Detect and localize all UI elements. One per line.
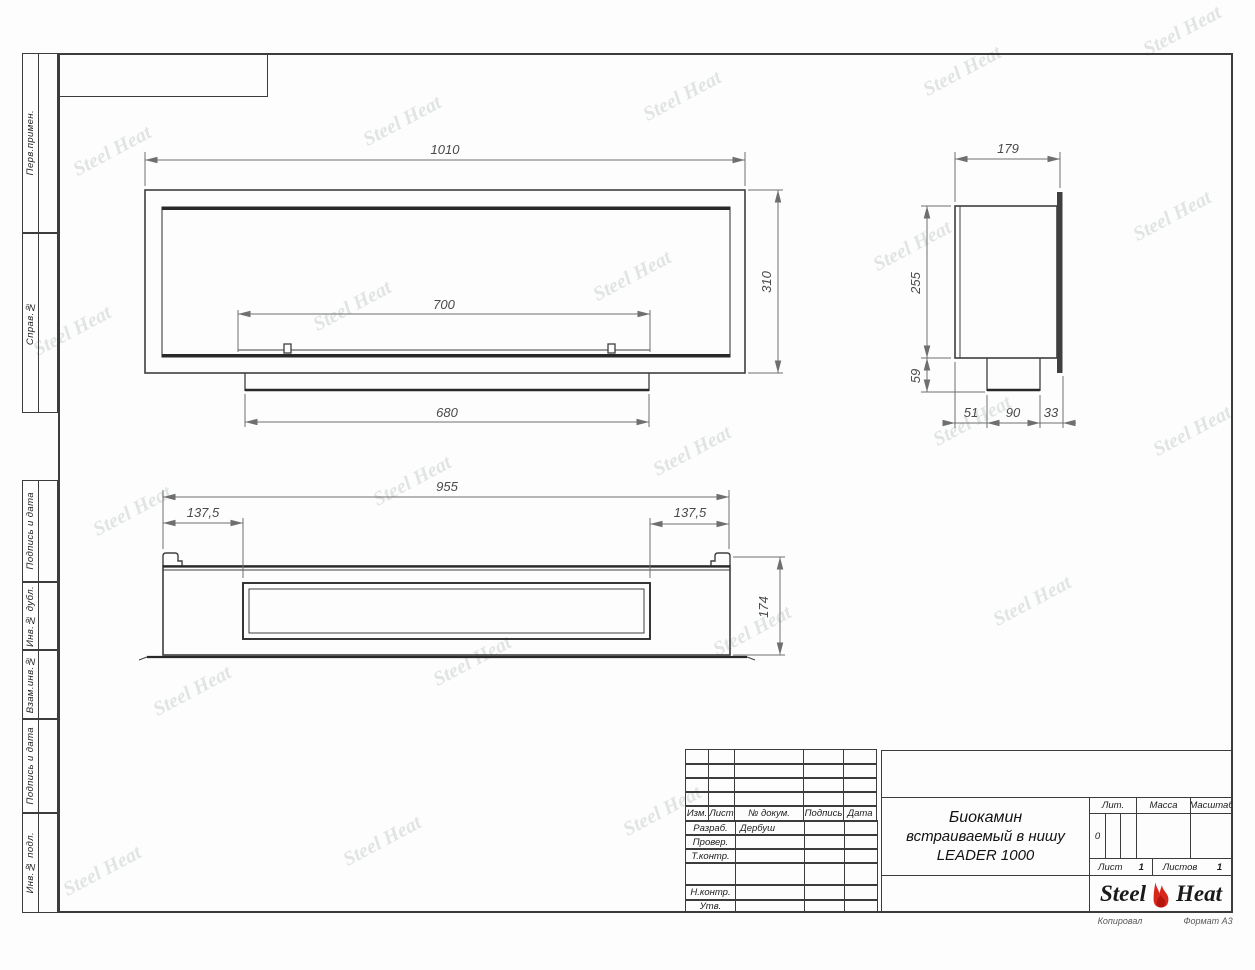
dim-front-height: 310 [759,270,774,292]
row-label-utv: Утв. [685,899,736,913]
plan-view-outline [139,553,755,660]
dim-side-seg2: 90 [1006,405,1021,420]
logo-cell: Steel Heat [1089,875,1233,913]
dim-side-height: 255 [908,271,923,294]
title-line-2: встраиваемый в нишу [906,827,1065,846]
dim-side-seg3: 33 [1044,405,1059,420]
flame-icon [1148,880,1174,909]
lit-value-cell: 0 [1089,813,1106,859]
designation-cell [881,750,1233,798]
burner-clip-right [608,344,615,353]
dim-side-seg1: 51 [964,405,978,420]
sheets-label: Листов [1163,862,1198,873]
lit-cell-2 [1105,813,1121,859]
front-view-dimensions [145,152,783,427]
burner-clip-left [284,344,291,353]
front-view-outline [145,190,745,391]
scale-header: Масштаб [1190,797,1233,814]
sheet-number-cell: Лист 1 [1089,858,1153,876]
dim-plan-width: 955 [436,479,458,494]
side-front-flange [1057,192,1063,373]
dim-side-lower: 59 [908,369,923,383]
dim-side-depth: 179 [997,141,1019,156]
dim-plan-depth: 174 [756,596,771,618]
plan-opening-inner [249,589,644,633]
copied-label: Копировал [1088,916,1152,926]
dim-front-burner: 700 [433,297,455,312]
plan-view-thick-edges [147,567,747,658]
dim-front-width: 1010 [431,142,461,157]
mass-header: Масса [1136,797,1191,814]
sheet-value: 1 [1139,862,1144,873]
lit-cell-3 [1120,813,1137,859]
sheet-label: Лист [1098,862,1122,873]
title-line-3: LEADER 1000 [937,846,1035,865]
side-view-dimensions [921,152,1076,428]
title-line-1: Биокамин [949,808,1022,827]
sheets-value: 1 [1217,862,1222,873]
format-label: Формат А3 [1180,916,1236,926]
dim-plan-offset-right: 137,5 [674,505,707,520]
drawing-sheet: Steel Heat Steel Heat Steel Heat Steel H… [0,0,1255,970]
dim-front-tray: 680 [436,405,458,420]
logo-heat-text: Heat [1176,881,1222,907]
scale-value-cell [1190,813,1233,859]
plan-opening-outer [243,583,650,639]
signer-row-blank [686,863,882,886]
side-view-outline [955,192,1063,391]
bottom-middle-cell [881,875,1090,913]
signer-row-utv: Утв. [686,900,882,913]
dim-plan-offset-left: 137,5 [187,505,220,520]
mounting-hook-left [163,553,182,566]
mass-value-cell [1136,813,1191,859]
mounting-hook-right [711,553,730,566]
lit-header: Лит. [1089,797,1137,814]
document-title: Биокамин встраиваемый в нишу LEADER 1000 [881,797,1090,876]
steelheat-logo: Steel Heat [1100,880,1222,909]
sheets-total-cell: Листов 1 [1152,858,1233,876]
logo-steel-text: Steel [1100,881,1146,907]
